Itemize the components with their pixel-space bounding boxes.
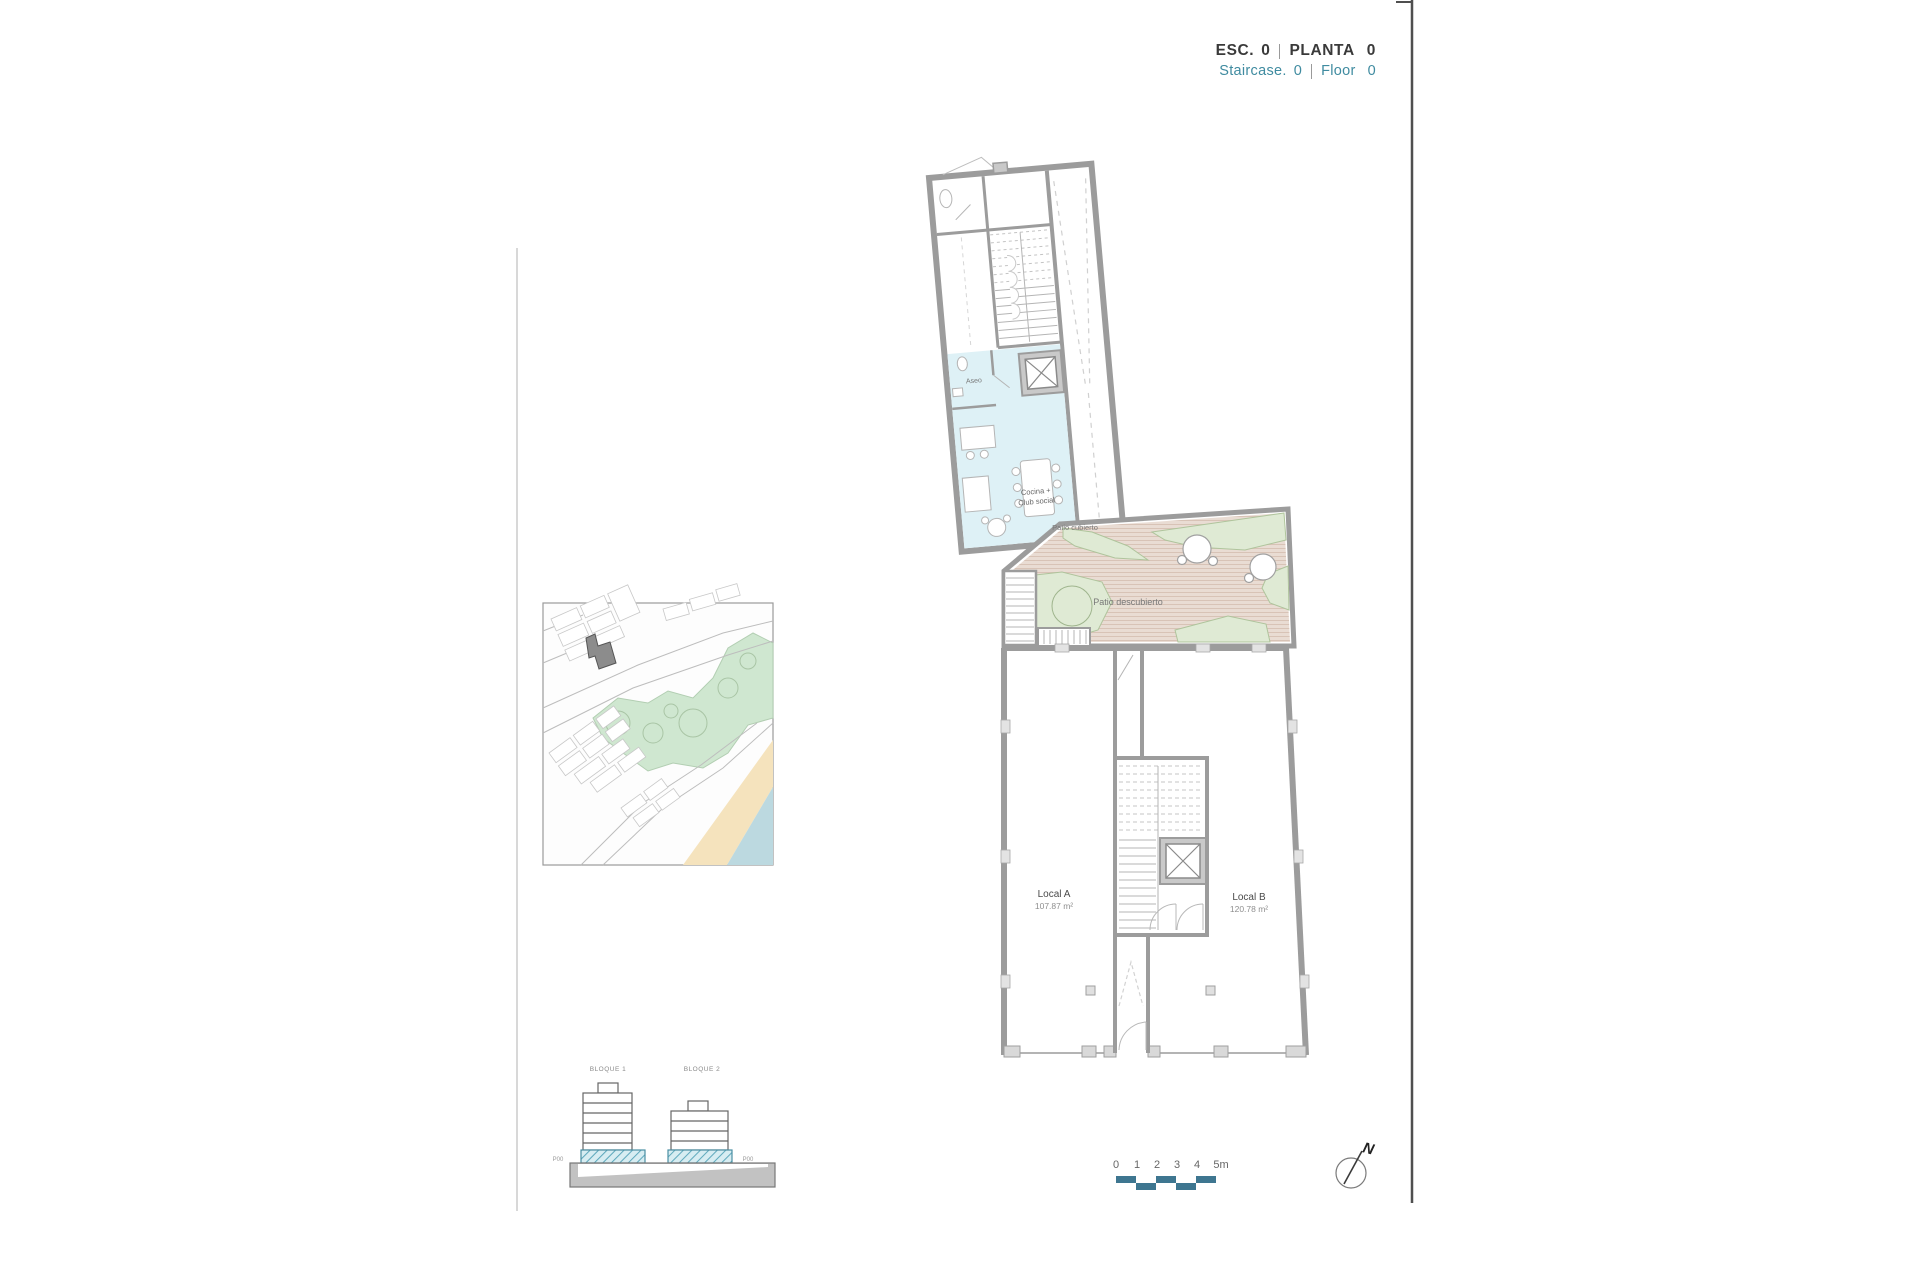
column	[1086, 986, 1095, 995]
esc-label: ESC.	[1216, 42, 1255, 60]
north-compass: N	[1336, 1139, 1377, 1188]
title-separator-2	[1311, 64, 1312, 79]
scale-bar-segments	[1116, 1176, 1216, 1190]
scale-tick-5: 5m	[1213, 1159, 1228, 1171]
tower-block1	[583, 1083, 632, 1150]
p00-highlight-block1	[581, 1150, 645, 1163]
title-row-spanish: ESC.0PLANTA0	[1216, 42, 1376, 60]
tree-icon	[1183, 535, 1211, 563]
p00-left-label: P00	[553, 1157, 564, 1163]
local-a-area: 107.87 m²	[1035, 901, 1073, 911]
compass-needle	[1344, 1151, 1362, 1184]
floor-value: 0	[1368, 63, 1376, 79]
aseo-label: Aseo	[966, 377, 983, 385]
staircase-label: Staircase.	[1219, 63, 1286, 79]
scale-tick-0: 0	[1113, 1159, 1119, 1171]
local-b-area: 120.78 m²	[1230, 904, 1268, 914]
title-separator	[1279, 44, 1280, 59]
column	[1206, 986, 1215, 995]
scale-tick-3: 3	[1174, 1159, 1180, 1171]
local-b-name: Local B	[1232, 892, 1266, 903]
bloque1-label: BLOQUE 1	[590, 1066, 627, 1073]
scale-bar: 0 1 2 3 4 5m	[1113, 1159, 1229, 1190]
scale-tick-2: 2	[1154, 1159, 1160, 1171]
scale-tick-1: 1	[1134, 1159, 1140, 1171]
patio-descubierto-label: Patio descubierto	[1093, 597, 1163, 607]
upper-block: Aseo Cocina + Club social	[928, 148, 1124, 552]
planta-label: PLANTA	[1289, 42, 1354, 60]
site-map	[543, 584, 773, 865]
planta-value: 0	[1367, 42, 1376, 60]
staircase-value: 0	[1294, 63, 1302, 79]
bloque2-label: BLOQUE 2	[684, 1066, 721, 1073]
tree-icon	[1250, 554, 1276, 580]
drawing-sheet: Aseo Cocina + Club social	[0, 0, 1920, 1280]
title-block: ESC.0PLANTA0 Staircase.0Floor0	[1216, 42, 1376, 79]
patio-stair-lower	[1038, 628, 1090, 646]
floor-plan: Aseo Cocina + Club social	[928, 148, 1309, 1057]
esc-value: 0	[1261, 42, 1270, 60]
local-a-name: Local A	[1038, 889, 1071, 900]
elevation-diagram: BLOQUE 1 BLOQUE 2 P00 P00	[553, 1066, 775, 1187]
sink-fixture	[952, 388, 963, 397]
north-label: N	[1361, 1139, 1377, 1158]
p00-right-label: P00	[743, 1157, 754, 1163]
title-row-english: Staircase.0Floor0	[1219, 63, 1376, 79]
floor-label: Floor	[1321, 63, 1356, 79]
lower-block: Local A 107.87 m² Local B 120.78 m²	[1001, 644, 1309, 1057]
compass-circle	[1336, 1158, 1366, 1188]
patio-cubierto-label: Patio cubierto	[1052, 523, 1098, 532]
p00-highlight-block2	[668, 1150, 732, 1163]
duct	[993, 162, 1008, 173]
tower-block2	[671, 1101, 728, 1150]
scale-tick-4: 4	[1194, 1159, 1200, 1171]
